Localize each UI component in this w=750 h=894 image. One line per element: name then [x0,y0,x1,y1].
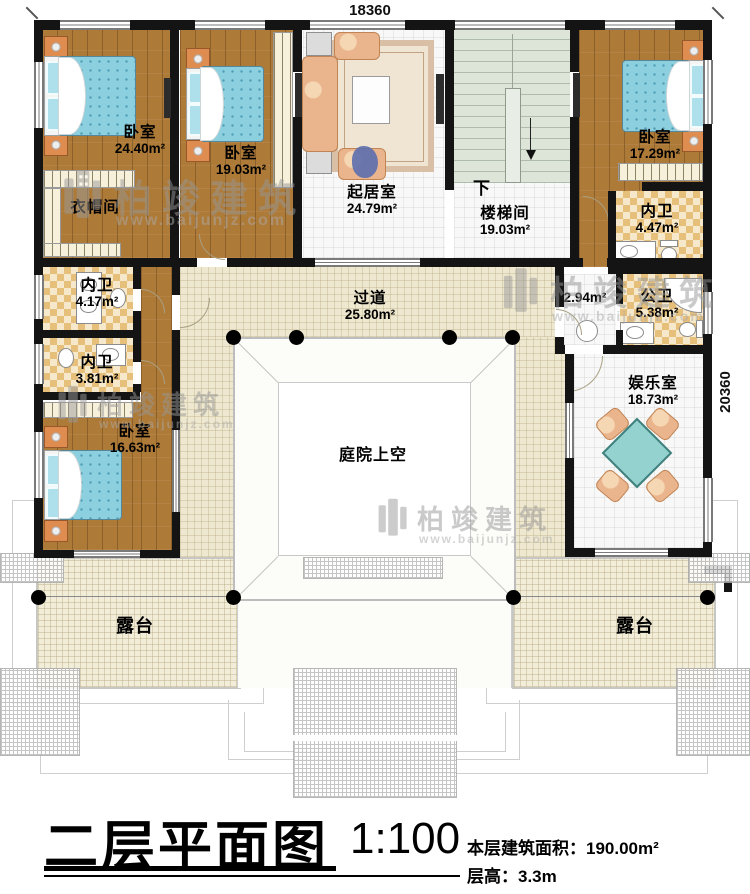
closet-hatch [43,243,121,257]
side-table [306,32,332,56]
column-dot [700,590,715,605]
wall [603,345,712,354]
window [195,20,265,30]
door-leaf [164,78,171,118]
wall [140,550,180,558]
roof-hatch [0,668,80,756]
column-dot [506,590,521,605]
window [34,344,44,384]
watermark: 柏竣建筑 www.baijunjz.com [62,168,104,227]
wall [642,182,712,191]
watermark: 柏竣建筑 www.baijunjz.com [502,266,540,321]
room-label-recreation: 娱乐室18.73m² [603,375,703,407]
drawing-scale: 1:100 [350,814,460,864]
room-label-ensuite3: 内卫4.47m² [612,203,702,235]
wall [227,258,315,267]
window [310,20,405,30]
window [455,20,565,30]
watermark: 柏竣建筑 www.baijunjz.com [377,496,409,545]
room-label-down: 下 [464,180,500,197]
window [605,20,675,30]
wall [570,117,579,258]
room-label-terrace-right: 露台 [595,618,675,635]
brand-logo-icon [502,266,540,316]
wall [34,550,74,558]
wall [565,458,574,557]
column-dot [226,590,241,605]
closet-hatch [618,163,703,181]
person-figure [352,146,378,178]
room-label-ensuite2: 内卫3.81m² [52,354,142,386]
wall [565,354,574,403]
dimension-tick-top-left [26,7,39,20]
wall [293,30,302,72]
window [595,548,668,557]
window [703,60,713,124]
brand-logo-icon [57,383,89,427]
roof-hatch [303,557,443,579]
dimension-top: 18360 [320,2,420,19]
floor-corridor-left [180,337,237,557]
window [60,20,130,30]
title-underline-thin [44,875,460,877]
room-label-courtyard: 庭院上空 [323,447,423,464]
window [315,258,420,267]
title-underline [44,866,336,871]
floor-area-text: 本层建筑面积：190.00m² [467,834,659,859]
floor-height-text: 层高：3.3m [467,862,557,887]
window [74,550,140,558]
wall [570,30,579,72]
door-leaf [295,73,302,117]
brand-logo-icon [62,168,104,222]
roof-hatch [293,668,457,798]
sofa [302,56,338,152]
side-table [306,150,332,174]
window [34,275,44,319]
room-label-living: 起居室24.79m² [322,184,422,216]
door-leaf [573,73,580,117]
watermark: 柏竣建筑 www.baijunjz.com [57,383,89,432]
room-label-stairwell: 楼梯间19.03m² [455,205,555,237]
terrace-right-front-line [512,596,711,597]
room-label-ensuite1: 内卫4.17m² [52,277,142,309]
column-dot [31,590,46,605]
room-label-corridor: 过道25.80m² [320,290,420,322]
dimension-tick-top-right [712,7,725,20]
wall [172,267,180,295]
room-label-bedroom1: 卧室24.40m² [90,124,190,156]
window [34,432,44,498]
wall [555,345,565,354]
room-label-terrace-left: 露台 [95,618,175,635]
wall [34,258,197,267]
wall [565,548,595,557]
wall [34,330,140,338]
terrace-left-front-line [38,596,237,597]
window [703,478,713,542]
door-leaf [436,74,444,124]
wall [445,30,454,190]
roof-hatch-gap [291,735,459,741]
column-dot [226,330,241,345]
brand-logo-icon [377,496,409,540]
title-block: 二层平面图 1:100 本层建筑面积：190.00m² 层高：3.3m [0,800,750,894]
column-dot [442,330,457,345]
column-dot [289,330,304,345]
floor-plan-drawing: 卧室24.40m² 衣帽间 卧室19.03m² 起居室24.79m² 下 楼梯间… [0,0,750,800]
armchair [334,32,380,60]
wall [668,548,712,557]
window [565,403,574,458]
roof-hatch [688,553,750,583]
roof-hatch [676,668,750,756]
toilet [679,322,696,337]
dimension-right: 20360 [717,357,737,427]
room-label-bedroom3: 卧室17.29m² [605,129,705,161]
window [34,62,44,128]
column-dot [505,330,520,345]
toilet-tank [660,240,678,247]
floor-plan-page: { "plan": { "dim_top": "18360", "dim_rig… [0,0,750,894]
coffee-table [352,76,390,124]
